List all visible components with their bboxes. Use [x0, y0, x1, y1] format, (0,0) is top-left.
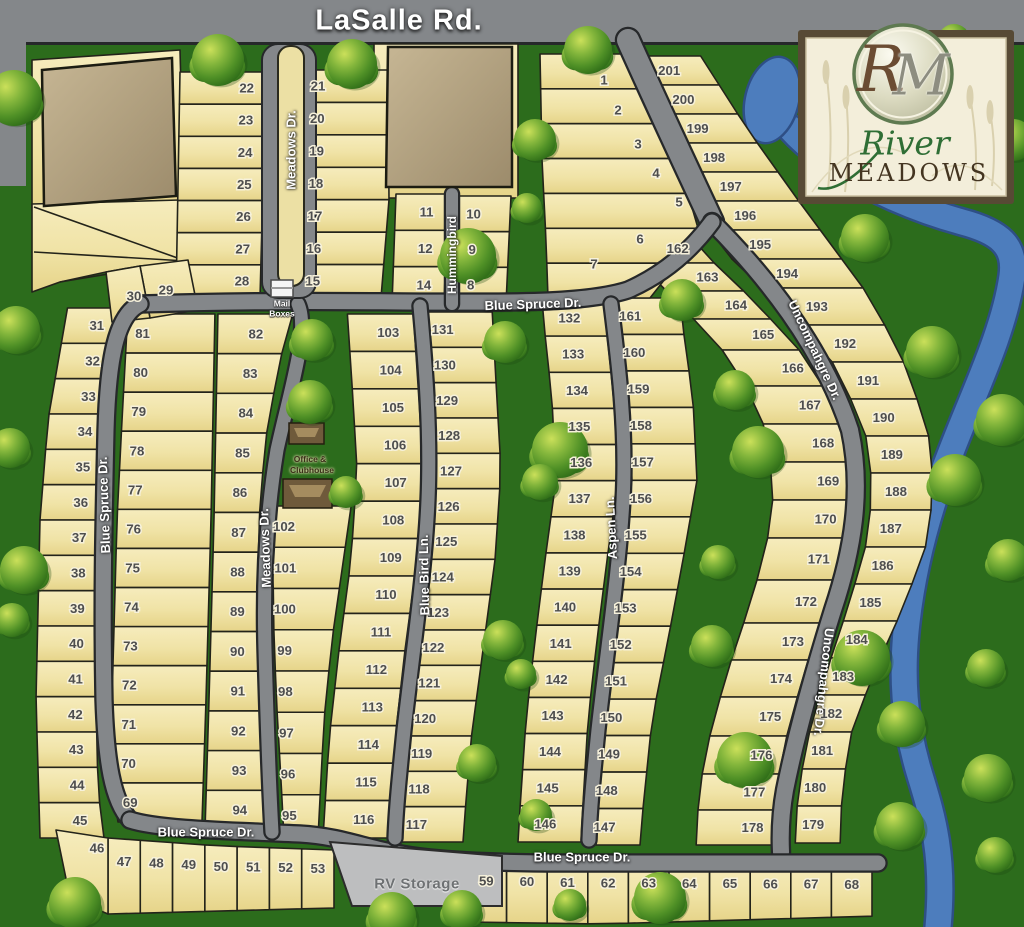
lot-number: 136 — [570, 455, 592, 470]
lot-number: 42 — [68, 707, 83, 722]
lot-number: 52 — [278, 860, 293, 875]
lot-number: 62 — [601, 875, 616, 890]
tree-foliage — [732, 426, 784, 478]
lot-number: 126 — [438, 499, 460, 514]
tree-foliage — [291, 319, 333, 361]
tree-foliage — [288, 380, 332, 424]
lot-number: 16 — [307, 241, 322, 256]
lot-number: 75 — [125, 561, 140, 576]
lot-number: 67 — [804, 877, 819, 892]
lot-number: 157 — [632, 455, 654, 470]
lot-number: 90 — [230, 644, 245, 659]
lot-number: 27 — [235, 241, 250, 256]
cattail-head — [843, 85, 850, 109]
lot-number: 40 — [69, 636, 84, 651]
lot-number: 159 — [627, 382, 649, 397]
lot-number: 140 — [554, 600, 576, 615]
lot-parcel — [205, 845, 237, 912]
lot-number: 170 — [815, 512, 837, 527]
lot-number: 43 — [69, 742, 84, 757]
tree-foliage — [512, 193, 542, 223]
river-meadows-site-map: 3132333435363738394041424344458180797877… — [0, 0, 1024, 927]
lot-number: 85 — [235, 445, 250, 460]
lot-number: 64 — [682, 876, 697, 891]
lot-number: 194 — [776, 266, 799, 281]
lot-number: 165 — [752, 327, 774, 342]
lot-number: 80 — [133, 365, 148, 380]
lot-number: 60 — [520, 874, 535, 889]
lot-number: 180 — [804, 780, 826, 795]
lot-number: 134 — [566, 383, 589, 398]
lot-number: 25 — [237, 177, 252, 192]
lot-number: 174 — [770, 671, 793, 686]
lot-number: 152 — [610, 637, 632, 652]
lot-number: 92 — [231, 723, 246, 738]
lot-number: 183 — [832, 669, 854, 684]
lot-number: 106 — [384, 438, 406, 453]
lot-number: 51 — [246, 860, 261, 875]
lot-number: 23 — [239, 113, 254, 128]
tree-foliage — [661, 279, 703, 321]
lot-number: 138 — [563, 527, 585, 542]
lot-number: 78 — [130, 443, 145, 458]
lot-parcel — [108, 838, 140, 914]
lot-number: 14 — [417, 277, 432, 292]
lot-number: 49 — [181, 857, 196, 872]
lot-number: 163 — [696, 270, 718, 285]
meadows-dr-top-label: Meadows Dr. — [284, 110, 299, 189]
lot-number: 117 — [406, 817, 427, 832]
lot-number: 39 — [70, 601, 85, 616]
aspen-ln-label: Aspen Ln. — [602, 496, 620, 560]
lot-number: 71 — [121, 717, 136, 732]
lot-number: 30 — [127, 289, 142, 304]
lot-number: 146 — [534, 816, 556, 831]
lot-number: 112 — [366, 662, 387, 677]
lot-number: 26 — [236, 209, 251, 224]
lot-number: 21 — [311, 79, 326, 94]
lot-number: 169 — [817, 474, 839, 489]
building-northwest — [42, 58, 176, 206]
tree-foliage — [330, 476, 362, 508]
tree-foliage — [906, 326, 958, 378]
lot-number: 179 — [802, 817, 824, 832]
tree-foliage — [715, 370, 755, 410]
lot-number: 145 — [537, 780, 559, 795]
lot-number: 173 — [782, 634, 804, 649]
lot-number: 73 — [123, 639, 138, 654]
lot-number: 172 — [795, 594, 817, 609]
lot-number: 176 — [750, 748, 772, 763]
lot-number: 171 — [808, 552, 830, 567]
tree-foliage — [49, 877, 101, 927]
lot-number: 44 — [70, 778, 85, 793]
lot-number: 84 — [238, 406, 253, 421]
tree-foliage — [192, 34, 244, 86]
lot-number: 144 — [539, 744, 562, 759]
lot-number: 15 — [305, 273, 320, 288]
lot-parcel — [38, 591, 99, 626]
lot-number: 24 — [238, 145, 253, 160]
lot-number: 198 — [703, 150, 725, 165]
lot-number: 74 — [124, 600, 139, 615]
lot-number: 155 — [625, 528, 647, 543]
tree-foliage — [967, 649, 1005, 687]
lot-number: 190 — [873, 410, 895, 425]
lot-number: 46 — [90, 841, 105, 856]
lot-number: 186 — [872, 558, 894, 573]
lot-number: 59 — [479, 873, 494, 888]
lot-number: 88 — [230, 565, 245, 580]
lot-number: 8 — [467, 278, 474, 293]
lot-number: 102 — [273, 519, 295, 534]
logo-name-meadows: MEADOWS — [829, 159, 989, 187]
lot-number: 95 — [282, 808, 297, 823]
lot-number: 66 — [763, 876, 778, 891]
lot-number: 99 — [277, 643, 292, 658]
lot-parcel — [39, 520, 101, 555]
lot-parcel — [768, 500, 850, 538]
lot-number: 187 — [880, 521, 902, 536]
mail-boxes-label-line1: Mail — [274, 300, 291, 309]
lot-number: 97 — [279, 725, 294, 740]
lot-number: 124 — [432, 570, 455, 585]
mail-boxes-label-line2: Boxes — [269, 310, 295, 319]
tree-foliage — [484, 321, 526, 363]
office-building-roof — [294, 428, 319, 437]
cattail-head — [967, 85, 974, 109]
tree-foliage — [483, 620, 523, 660]
lot-parcel — [456, 196, 511, 232]
lot-number: 201 — [658, 63, 680, 78]
lot-number: 114 — [358, 737, 380, 752]
lot-number: 147 — [594, 819, 616, 834]
lot-number: 22 — [239, 81, 254, 96]
lot-number: 12 — [418, 241, 433, 256]
lot-number: 4 — [652, 166, 660, 181]
lot-number: 120 — [414, 711, 436, 726]
lot-number: 137 — [568, 491, 590, 506]
lot-number: 32 — [85, 354, 100, 369]
tree-foliage — [554, 889, 586, 921]
lot-number: 189 — [881, 447, 903, 462]
lot-number: 142 — [546, 672, 568, 687]
lot-number: 86 — [233, 485, 248, 500]
lot-number: 89 — [230, 604, 245, 619]
lot-number: 122 — [422, 640, 444, 655]
lot-number: 158 — [630, 418, 652, 433]
blue-bird-ln-label: Blue Bird Ln. — [416, 534, 432, 615]
lot-number: 37 — [72, 530, 87, 545]
lot-number: 115 — [355, 774, 376, 789]
lot-number: 101 — [274, 560, 296, 575]
tree-foliage — [522, 464, 558, 500]
lot-parcel — [37, 732, 98, 767]
lot-number: 185 — [859, 595, 881, 610]
lot-number: 150 — [600, 710, 622, 725]
lot-number: 167 — [799, 398, 821, 413]
lot-number: 193 — [806, 299, 828, 314]
lot-number: 177 — [743, 785, 765, 800]
lot-number: 38 — [71, 566, 86, 581]
lot-number: 31 — [89, 318, 104, 333]
lot-number: 160 — [623, 345, 645, 360]
lot-parcel — [36, 661, 97, 696]
lot-number: 192 — [834, 336, 856, 351]
lot-number: 28 — [235, 273, 250, 288]
tree-foliage — [876, 802, 924, 850]
rv-storage-label: RV Storage — [374, 876, 460, 893]
lot-number: 1 — [600, 73, 607, 88]
tree-foliage — [701, 545, 735, 579]
lot-number: 20 — [310, 111, 325, 126]
lot-parcel — [37, 626, 98, 661]
lot-parcel — [542, 159, 688, 194]
lot-number: 110 — [375, 587, 396, 602]
hummingbird-label: Hummingbird — [445, 216, 459, 294]
cattail-head — [823, 60, 830, 84]
lot-parcel — [140, 840, 172, 913]
lot-number: 41 — [68, 672, 83, 687]
lot-number: 53 — [311, 861, 326, 876]
lot-number: 128 — [438, 428, 460, 443]
lot-number: 48 — [149, 856, 164, 871]
lot-number: 111 — [371, 625, 392, 640]
lot-number: 139 — [559, 564, 581, 579]
lot-number: 118 — [408, 782, 429, 797]
lot-number: 135 — [568, 419, 590, 434]
lot-number: 100 — [274, 602, 296, 617]
lot-number: 166 — [782, 361, 804, 376]
lot-number: 199 — [687, 121, 709, 136]
tree-foliage — [929, 454, 981, 506]
lot-number: 133 — [562, 347, 584, 362]
lot-number: 197 — [720, 179, 742, 194]
lot-number: 47 — [117, 854, 132, 869]
lot-number: 178 — [741, 820, 763, 835]
lot-number: 107 — [385, 475, 407, 490]
lot-number: 104 — [380, 363, 403, 378]
building-north — [386, 47, 512, 187]
lot-number: 119 — [411, 746, 432, 761]
lot-number: 130 — [434, 358, 456, 373]
lot-number: 96 — [281, 767, 296, 782]
lot-parcel — [269, 848, 301, 910]
lot-number: 81 — [135, 326, 150, 341]
lot-number: 154 — [620, 564, 643, 579]
lot-number: 103 — [377, 325, 399, 340]
lot-number: 7 — [590, 257, 597, 272]
lot-number: 18 — [309, 176, 324, 191]
lot-number: 153 — [615, 600, 637, 615]
lot-number: 70 — [121, 756, 136, 771]
lot-number: 156 — [630, 491, 652, 506]
lot-number: 191 — [857, 373, 879, 388]
lot-number: 6 — [636, 232, 643, 247]
lot-parcel — [710, 697, 798, 736]
lot-number: 121 — [418, 676, 440, 691]
lot-parcel — [731, 623, 820, 660]
tree-foliage — [879, 701, 925, 747]
lot-number: 195 — [749, 237, 771, 252]
lot-number: 9 — [468, 242, 475, 257]
lot-number: 132 — [558, 311, 580, 326]
lot-number: 116 — [353, 812, 374, 827]
office-clubhouse-label-line1: Office & — [294, 454, 327, 464]
lot-parcel — [36, 697, 97, 732]
lot-parcel — [757, 538, 845, 580]
lot-number: 93 — [232, 763, 247, 778]
lot-number: 161 — [619, 309, 641, 324]
lot-number: 76 — [126, 521, 141, 536]
lot-number: 10 — [466, 206, 481, 221]
lot-number: 50 — [214, 859, 229, 874]
lot-number: 17 — [308, 208, 323, 223]
lot-number: 164 — [725, 298, 748, 313]
lot-number: 5 — [675, 195, 682, 210]
lot-number: 83 — [243, 366, 258, 381]
lot-number: 35 — [76, 460, 91, 475]
lot-number: 175 — [759, 709, 781, 724]
lot-number: 11 — [420, 205, 434, 220]
tree-foliage — [841, 214, 889, 262]
lot-number: 109 — [380, 550, 402, 565]
tree-foliage — [506, 659, 536, 689]
lot-number: 148 — [596, 783, 618, 798]
meadows-dr-label: Meadows Dr. — [256, 508, 274, 588]
office-clubhouse-label-line2: Clubhouse — [290, 465, 334, 475]
lot-number: 77 — [128, 482, 143, 497]
lot-parcel — [40, 485, 103, 520]
lot-parcel — [720, 660, 808, 697]
lasalle-road-label: LaSalle Rd. — [315, 5, 482, 38]
lot-number: 129 — [436, 393, 458, 408]
lot-number: 168 — [812, 436, 834, 451]
lot-number: 3 — [634, 137, 641, 152]
lot-number: 36 — [73, 495, 88, 510]
tree-foliage — [977, 837, 1013, 873]
lot-number: 72 — [122, 678, 137, 693]
lot-number: 162 — [667, 241, 689, 256]
lot-number: 45 — [73, 813, 88, 828]
lot-parcel — [237, 847, 269, 911]
lot-number: 98 — [278, 684, 293, 699]
lot-number: 188 — [885, 484, 907, 499]
lot-number: 69 — [123, 795, 138, 810]
lot-number: 151 — [605, 673, 627, 688]
lot-number: 149 — [598, 746, 620, 761]
cattail-head — [987, 100, 994, 124]
lot-number: 19 — [309, 144, 324, 159]
lot-parcel — [173, 843, 205, 913]
lot-number: 65 — [723, 876, 738, 891]
tree-foliage — [691, 625, 733, 667]
lot-number: 34 — [78, 424, 93, 439]
logo-name-river: River — [860, 124, 949, 163]
tree-foliage — [514, 119, 556, 161]
lot-number: 2 — [614, 103, 621, 118]
blue-spruce-southeast-label: Blue Spruce Dr. — [534, 850, 631, 865]
lot-number: 108 — [382, 512, 404, 527]
lot-number: 141 — [550, 636, 572, 651]
lot-number: 125 — [435, 534, 457, 549]
lot-number: 82 — [249, 326, 264, 341]
tree-foliage — [564, 26, 612, 74]
lot-number: 91 — [230, 684, 245, 699]
lot-number: 200 — [672, 92, 694, 107]
lot-number: 61 — [560, 875, 575, 890]
logo-monogram-m: M — [892, 44, 949, 109]
lot-parcel — [302, 849, 334, 909]
lot-number: 113 — [362, 700, 383, 715]
tree-foliage — [0, 546, 48, 594]
lot-number: 105 — [382, 400, 404, 415]
clubhouse-building-roof — [289, 485, 326, 497]
lot-number: 181 — [811, 743, 833, 758]
lot-number: 94 — [232, 803, 247, 818]
lot-number: 63 — [641, 876, 656, 891]
lot-number: 184 — [846, 632, 869, 647]
lot-number: 29 — [159, 283, 174, 298]
lot-number: 131 — [432, 322, 454, 337]
lot-number: 68 — [844, 877, 859, 892]
lot-number: 143 — [542, 708, 564, 723]
tree-foliage — [327, 39, 377, 89]
tree-foliage — [458, 744, 496, 782]
blue-spruce-south-label: Blue Spruce Dr. — [158, 825, 255, 840]
lot-number: 196 — [734, 208, 756, 223]
lot-number: 87 — [231, 525, 246, 540]
tree-foliage — [964, 754, 1012, 802]
lot-number: 79 — [131, 404, 146, 419]
lot-number: 127 — [440, 464, 462, 479]
lot-number: 33 — [81, 389, 96, 404]
